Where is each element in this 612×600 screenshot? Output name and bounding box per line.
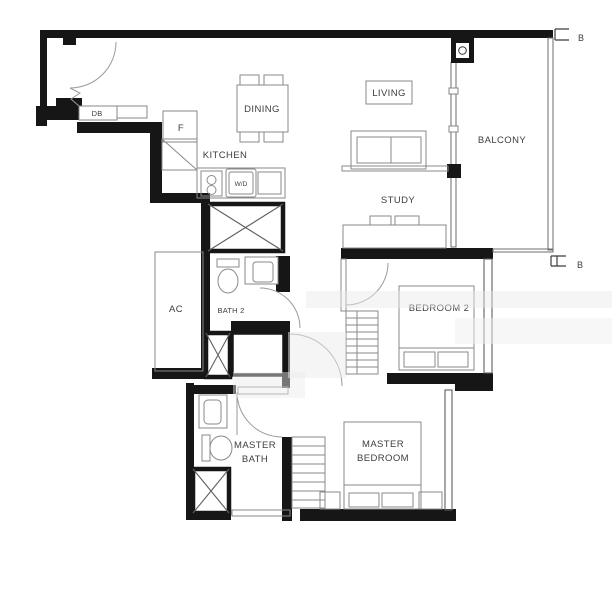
wall-door-jamb-entry: [63, 38, 76, 45]
masterbath-door-arc: [237, 392, 282, 437]
kitchen-counter-diagonal: [162, 139, 197, 170]
side-table: [419, 492, 442, 509]
b-bracket-bottom-icon: [551, 256, 566, 266]
wall-segment-db-back: [77, 122, 162, 133]
vanity-basin: [204, 400, 221, 424]
dining-chair: [264, 132, 283, 142]
study-label: STUDY: [381, 195, 415, 206]
desk-item: [370, 216, 391, 225]
toilet-bowl-icon: [210, 436, 232, 460]
toilet-bowl-icon: [218, 269, 238, 293]
sofa-seat: [391, 137, 421, 163]
bedroom2-wardrobe: [346, 311, 378, 374]
balcony-bottom-edge: [493, 249, 553, 252]
balcony-outer-wall: [548, 38, 553, 250]
bath2-label: BATH 2: [218, 306, 245, 315]
wardrobe-shelves: [346, 311, 378, 374]
floor-plan-page: B B F W/D KITC: [0, 0, 612, 600]
wall-segment-closet-top: [231, 321, 290, 332]
pillow: [404, 352, 435, 367]
entry-door-arc: [70, 42, 116, 88]
master-window: [445, 390, 452, 510]
watermark-band: [233, 372, 305, 398]
wall-segment-bedroom2-bottom: [387, 373, 493, 384]
pillow: [438, 352, 468, 367]
wall-segment-bedroom2-step: [455, 384, 493, 391]
hob-icon: [201, 171, 222, 196]
masterbedroom-label-line2: BEDROOM: [357, 453, 409, 464]
dining-chair: [240, 132, 259, 142]
wall-segment-left: [40, 30, 47, 116]
kitchen-area: F W/D KITCHEN: [162, 111, 285, 198]
toilet-tank-icon: [217, 259, 239, 267]
wall-segment-corridor-west: [150, 122, 162, 202]
wall-segment-top: [41, 30, 553, 38]
bedroom2-area: BEDROOM 2: [346, 259, 492, 374]
ac-label: AC: [169, 304, 183, 315]
masterbath-label-line1: MASTER: [234, 440, 276, 451]
masterbath-label-line2: BATH: [242, 454, 268, 465]
entry-cabinet: [117, 106, 147, 118]
glass-node: [447, 164, 461, 178]
balcony-label: BALCONY: [478, 135, 526, 146]
kitchen-sink-icon: [258, 172, 281, 194]
column-circle-icon: [459, 47, 467, 55]
hall-closet: [232, 333, 284, 375]
shafts: [193, 204, 284, 513]
study-desk: [343, 225, 446, 248]
floor-plan: B B F W/D KITC: [0, 0, 612, 600]
watermark-band: [288, 332, 346, 378]
hob-burner-icon: [207, 176, 216, 185]
walls: [36, 30, 553, 521]
hob-burner-icon: [207, 186, 216, 195]
wall-segment-entry-end: [36, 112, 47, 126]
wall-segment-master-bottom: [300, 509, 456, 521]
dining-area: DINING: [237, 75, 288, 142]
b-markers: B B: [551, 29, 584, 270]
sliding-door-tick: [449, 88, 458, 94]
wall-segment-study-south: [341, 248, 493, 259]
b-top-label: B: [578, 33, 584, 43]
dining-chair: [264, 75, 283, 85]
db-label: DB: [92, 109, 103, 118]
dining-chair: [240, 75, 259, 85]
watermark-band: [455, 318, 612, 344]
masterbedroom-area: MASTER BEDROOM: [292, 390, 452, 510]
b-bracket-top-icon: [555, 29, 569, 40]
wall-segment-masterbath-top: [194, 385, 236, 394]
pillow: [349, 493, 379, 507]
kitchen-label: KITCHEN: [203, 150, 248, 161]
watermark-band: [306, 291, 612, 308]
masterbedroom-label-line1: MASTER: [362, 439, 404, 450]
wall-segment-ac-bottom: [152, 368, 210, 379]
sofa-seat: [357, 137, 391, 163]
dining-label: DINING: [244, 104, 280, 115]
masterbath-bottom-threshold: [232, 510, 290, 516]
living-area: LIVING BALCONY STUDY: [343, 81, 526, 248]
washer-dryer-label: W/D: [235, 181, 248, 188]
pillow: [382, 493, 413, 507]
wall-segment-wardrobe: [282, 437, 292, 521]
bedroom2-window: [484, 259, 492, 373]
fridge-label: F: [178, 123, 184, 134]
desk-item: [395, 216, 419, 225]
toilet-tank-icon: [202, 435, 210, 461]
living-label: LIVING: [372, 88, 406, 99]
entry-area: DB: [79, 106, 147, 120]
sliding-door-tick: [449, 126, 458, 132]
b-bottom-label: B: [577, 260, 583, 270]
